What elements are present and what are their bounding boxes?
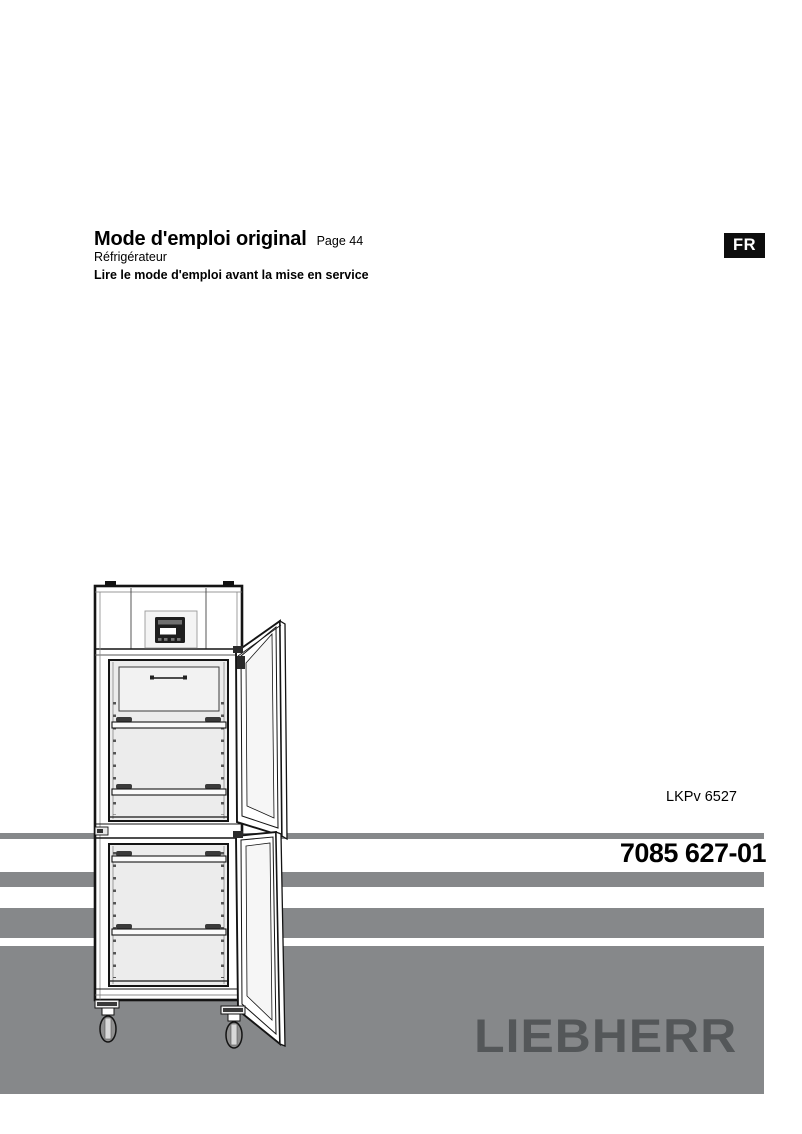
manual-cover-page: Mode d'emploi original Page 44 Réfrigéra… [0, 0, 802, 1134]
model-number: LKPv 6527 [666, 789, 737, 805]
document-number: 7085 627-01 [620, 838, 766, 869]
refrigerator-illustration [0, 0, 802, 1134]
liebherr-logo: LIEBHERR [474, 1012, 737, 1059]
